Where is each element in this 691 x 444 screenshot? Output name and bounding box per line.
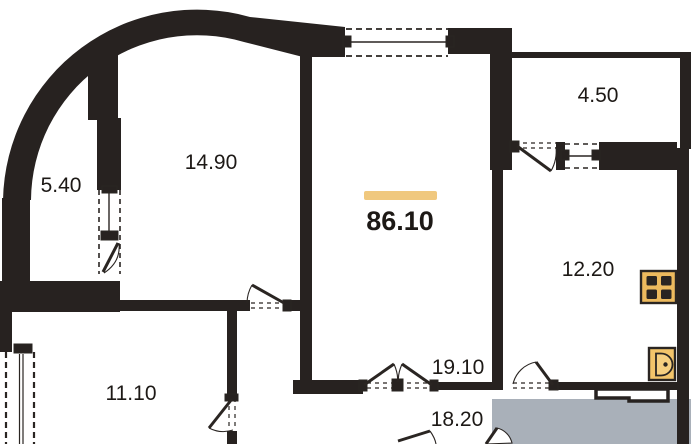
gray-overlay xyxy=(492,399,691,444)
door-room-left xyxy=(209,394,238,432)
area-label-room-top: 14.90 xyxy=(185,151,238,174)
door-bathroom xyxy=(510,141,556,171)
parapet-notch xyxy=(596,389,668,401)
total-area-label: 86.10 xyxy=(366,206,434,236)
door-double-living xyxy=(359,364,438,391)
window-top xyxy=(343,29,454,56)
floor-plan: 86.10 5.40 14.90 4.50 12.20 19.10 11.10 … xyxy=(0,0,691,444)
area-label-room-bottom: 18.20 xyxy=(431,408,484,431)
window-bathroom xyxy=(561,144,600,168)
area-label-room-left: 11.10 xyxy=(106,382,157,405)
area-label-balcony: 5.40 xyxy=(41,174,82,197)
stove-icon xyxy=(641,271,676,303)
floor-plan-canvas: 86.10 5.40 14.90 4.50 12.20 19.10 11.10 … xyxy=(0,0,691,444)
total-area-bar xyxy=(364,191,437,200)
area-label-kitchen: 12.20 xyxy=(562,258,615,281)
window-left xyxy=(6,344,34,444)
door-room-top xyxy=(247,285,291,311)
doors xyxy=(209,141,558,444)
arc-wall xyxy=(3,10,345,200)
door-kitchen xyxy=(513,362,558,390)
area-label-bathroom: 4.50 xyxy=(578,84,619,107)
area-label-living: 19.10 xyxy=(432,356,485,379)
walls xyxy=(0,10,691,444)
door-bottom-partial xyxy=(398,431,436,444)
sink-icon xyxy=(649,348,675,380)
window-balcony xyxy=(99,186,120,274)
